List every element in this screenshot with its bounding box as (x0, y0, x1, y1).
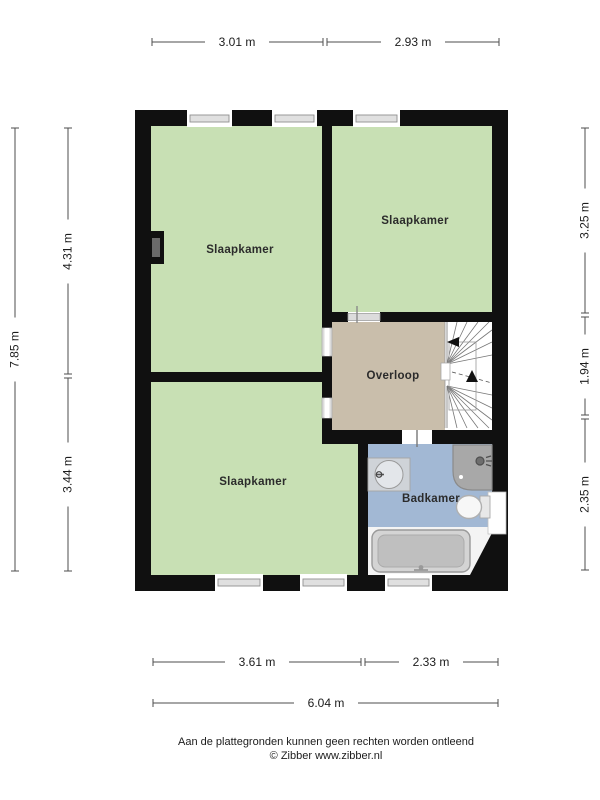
window-icon (303, 579, 344, 586)
corner-shower (453, 445, 492, 490)
chimney (148, 231, 164, 264)
footer-copyright: © Zibber www.zibber.nl (76, 749, 576, 763)
dimension-label-bottom-2: 2.33 m (399, 655, 463, 670)
floorplan-page: Slaapkamer Slaapkamer Slaapkamer Overloo… (0, 0, 600, 800)
window-icon (190, 115, 229, 122)
dimension-label-right-3: 2.35 m (578, 463, 593, 527)
dimension-label-left-1: 4.31 m (61, 220, 76, 284)
windows-bottom (215, 574, 432, 591)
room-label-landing: Overloop (323, 368, 463, 384)
bathtub (372, 530, 470, 572)
windows-top (187, 110, 400, 127)
door-landing-top (348, 314, 380, 321)
dimension-label-top-2: 2.93 m (381, 35, 445, 50)
floorplan-drawing (0, 0, 600, 800)
room-label-bedroom-top-right: Slaapkamer (345, 213, 485, 229)
dimension-label-left-2: 3.44 m (61, 443, 76, 507)
dimension-label-bottom-total: 6.04 m (294, 696, 358, 711)
room-label-bedroom-top-left: Slaapkamer (170, 242, 310, 258)
footer-disclaimer: Aan de plattegronden kunnen geen rechten… (76, 735, 576, 749)
dimension-label-top-1: 3.01 m (205, 35, 269, 50)
dimension-label-left-total: 7.85 m (8, 318, 23, 382)
window-icon (356, 115, 397, 122)
sink (368, 458, 410, 491)
window-icon (218, 579, 260, 586)
dimension-label-right-1: 3.25 m (578, 189, 593, 253)
window-icon (388, 579, 429, 586)
room-label-bathroom: Badkamer (361, 491, 501, 507)
room-label-bedroom-bottom-left: Slaapkamer (183, 474, 323, 490)
dimension-label-right-2: 1.94 m (578, 335, 593, 399)
dimension-label-bottom-1: 3.61 m (225, 655, 289, 670)
window-icon (275, 115, 314, 122)
